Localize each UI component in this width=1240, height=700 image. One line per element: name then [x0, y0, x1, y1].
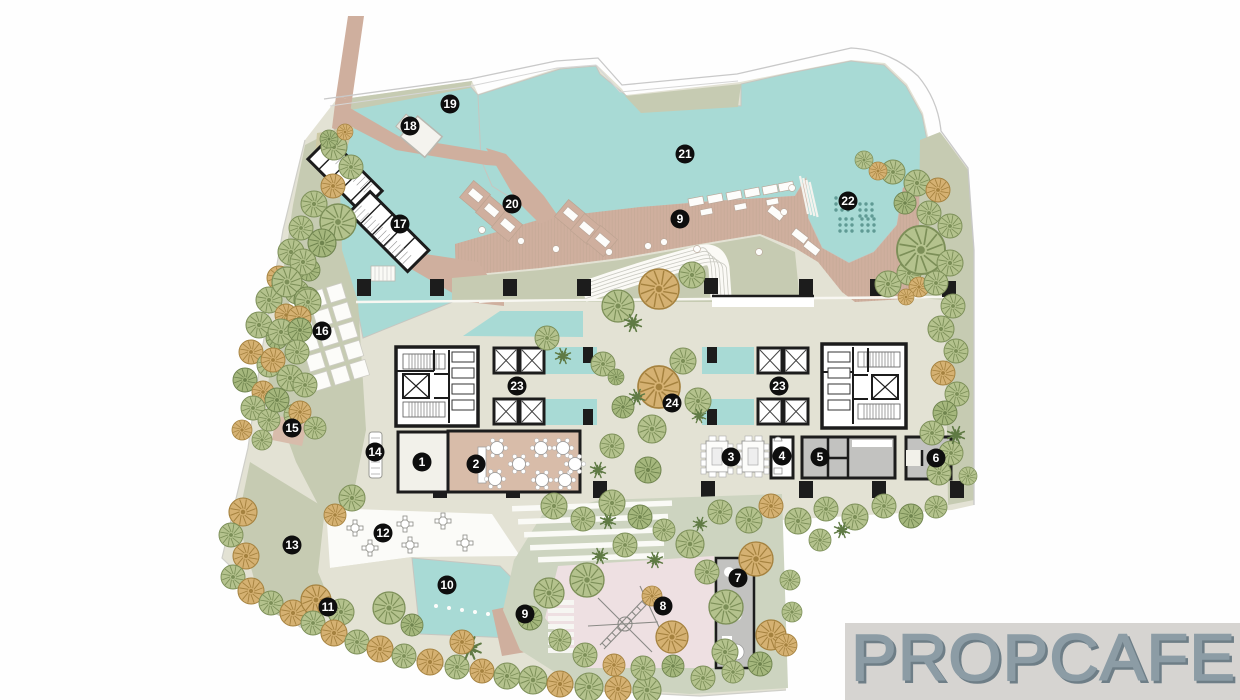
svg-text:5: 5	[817, 450, 824, 464]
svg-text:15: 15	[285, 421, 299, 435]
svg-text:6: 6	[933, 451, 940, 465]
svg-text:2: 2	[473, 457, 480, 471]
svg-text:10: 10	[440, 578, 454, 592]
svg-text:11: 11	[322, 600, 335, 614]
svg-text:18: 18	[403, 119, 417, 133]
svg-text:23: 23	[772, 379, 786, 393]
svg-text:21: 21	[678, 147, 692, 161]
svg-text:PROPCAFE: PROPCAFE	[851, 620, 1236, 694]
svg-text:8: 8	[660, 599, 667, 613]
svg-text:9: 9	[677, 212, 684, 226]
svg-text:14: 14	[368, 445, 382, 459]
svg-text:7: 7	[735, 571, 742, 585]
svg-text:23: 23	[510, 379, 524, 393]
svg-text:12: 12	[376, 526, 390, 540]
svg-text:4: 4	[779, 449, 786, 463]
svg-text:13: 13	[285, 538, 299, 552]
svg-text:24: 24	[665, 396, 679, 410]
svg-text:17: 17	[393, 217, 407, 231]
svg-text:16: 16	[315, 324, 329, 338]
svg-text:9: 9	[522, 607, 529, 621]
svg-text:22: 22	[841, 194, 855, 208]
svg-text:20: 20	[505, 197, 519, 211]
svg-text:3: 3	[728, 450, 735, 464]
svg-text:1: 1	[419, 455, 426, 469]
svg-text:19: 19	[443, 97, 457, 111]
